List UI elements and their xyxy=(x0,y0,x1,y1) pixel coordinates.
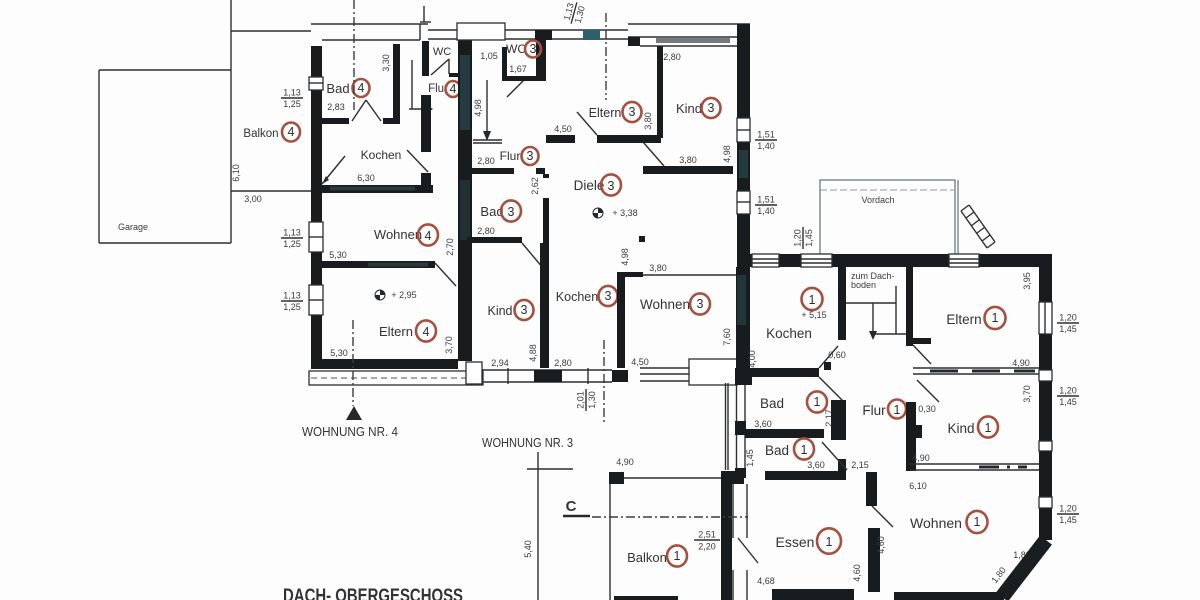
svg-text:Bad: Bad xyxy=(760,396,784,411)
svg-text:1: 1 xyxy=(894,403,901,417)
svg-text:1,25: 1,25 xyxy=(283,99,301,109)
svg-text:3: 3 xyxy=(530,42,537,56)
svg-text:3,80: 3,80 xyxy=(679,155,697,165)
svg-text:2,51: 2,51 xyxy=(698,530,716,540)
svg-text:3: 3 xyxy=(605,289,612,303)
svg-text:1,45: 1,45 xyxy=(1059,397,1077,407)
svg-text:3,70: 3,70 xyxy=(444,336,454,354)
svg-text:3: 3 xyxy=(697,297,704,311)
svg-text:+ 5,15: + 5,15 xyxy=(801,310,826,320)
svg-text:2,20: 2,20 xyxy=(698,542,716,552)
svg-text:1,20: 1,20 xyxy=(793,229,803,247)
svg-text:4,98: 4,98 xyxy=(722,145,732,163)
svg-text:1: 1 xyxy=(826,535,833,549)
svg-text:3,70: 3,70 xyxy=(1022,385,1032,403)
svg-text:7,60: 7,60 xyxy=(722,328,732,346)
svg-text:1,67: 1,67 xyxy=(509,64,527,74)
svg-text:5,30: 5,30 xyxy=(330,348,348,358)
svg-text:1: 1 xyxy=(801,443,808,457)
svg-text:5,40: 5,40 xyxy=(523,540,533,558)
svg-text:Kind: Kind xyxy=(947,421,974,436)
svg-text:1: 1 xyxy=(809,293,816,307)
svg-text:3: 3 xyxy=(521,303,528,317)
svg-text:2,83: 2,83 xyxy=(327,102,345,112)
svg-text:4: 4 xyxy=(425,229,432,243)
svg-text:C: C xyxy=(566,498,577,515)
svg-text:1,51: 1,51 xyxy=(757,195,775,205)
svg-text:2,80: 2,80 xyxy=(663,52,681,62)
svg-text:4,90: 4,90 xyxy=(912,453,930,463)
svg-text:3,30: 3,30 xyxy=(381,54,391,72)
svg-text:1,20: 1,20 xyxy=(1059,386,1077,396)
svg-text:2,80: 2,80 xyxy=(554,358,572,368)
svg-text:1,45: 1,45 xyxy=(1059,324,1077,334)
svg-text:3,60: 3,60 xyxy=(807,460,825,470)
svg-text:Kochen: Kochen xyxy=(766,326,812,341)
svg-text:Eltern: Eltern xyxy=(379,324,413,339)
svg-text:3: 3 xyxy=(508,205,515,219)
svg-text:3: 3 xyxy=(608,179,615,193)
svg-text:Kind: Kind xyxy=(676,101,702,116)
svg-text:4: 4 xyxy=(423,325,430,339)
svg-text:Wohnen: Wohnen xyxy=(640,297,690,312)
svg-text:3,00: 3,00 xyxy=(244,194,262,204)
svg-text:4,60: 4,60 xyxy=(852,564,862,582)
svg-text:boden: boden xyxy=(851,280,876,290)
svg-text:Eltern: Eltern xyxy=(589,106,622,120)
svg-text:Balkon: Balkon xyxy=(627,550,667,565)
svg-text:Garage: Garage xyxy=(118,222,148,232)
svg-text:0,60: 0,60 xyxy=(828,350,846,360)
svg-text:Flur: Flur xyxy=(500,149,521,163)
svg-text:1,20: 1,20 xyxy=(1059,504,1077,514)
svg-text:6,30: 6,30 xyxy=(357,173,375,183)
svg-text:5,30: 5,30 xyxy=(329,250,347,260)
svg-text:4: 4 xyxy=(450,82,457,96)
svg-text:4: 4 xyxy=(358,81,365,95)
svg-text:+ 2,95: + 2,95 xyxy=(391,290,416,300)
svg-text:Bad: Bad xyxy=(326,81,349,96)
svg-text:4,98: 4,98 xyxy=(473,99,483,117)
svg-text:1: 1 xyxy=(974,515,981,529)
svg-text:2,62: 2,62 xyxy=(530,177,540,195)
svg-text:Vordach: Vordach xyxy=(861,195,894,205)
svg-text:0,30: 0,30 xyxy=(918,404,936,414)
svg-text:+ 3,38: + 3,38 xyxy=(612,208,637,218)
svg-text:4,68: 4,68 xyxy=(757,576,775,586)
svg-text:WC: WC xyxy=(506,42,526,56)
svg-text:6,10: 6,10 xyxy=(909,481,927,491)
svg-text:4: 4 xyxy=(288,125,295,139)
svg-text:1: 1 xyxy=(814,395,821,409)
svg-text:2,94: 2,94 xyxy=(491,358,509,368)
svg-text:1,40: 1,40 xyxy=(757,206,775,216)
svg-text:4,98: 4,98 xyxy=(620,248,630,266)
svg-text:2,70: 2,70 xyxy=(445,238,455,256)
svg-text:2,15: 2,15 xyxy=(851,460,869,470)
svg-text:1,40: 1,40 xyxy=(757,141,775,151)
svg-text:1,51: 1,51 xyxy=(757,130,775,140)
svg-text:4,50: 4,50 xyxy=(554,124,572,134)
svg-text:Wohnen: Wohnen xyxy=(374,227,422,242)
svg-text:WOHNUNG NR. 3: WOHNUNG NR. 3 xyxy=(482,436,573,450)
svg-text:Eltern: Eltern xyxy=(946,312,981,327)
svg-text:1,13: 1,13 xyxy=(283,88,301,98)
svg-text:3: 3 xyxy=(527,149,534,163)
svg-text:2,80: 2,80 xyxy=(477,156,495,166)
svg-text:WC: WC xyxy=(433,46,451,58)
svg-text:1: 1 xyxy=(674,549,681,563)
svg-text:1,20: 1,20 xyxy=(1059,313,1077,323)
svg-text:4,90: 4,90 xyxy=(616,457,634,467)
svg-text:Kind: Kind xyxy=(487,304,512,318)
svg-text:3,60: 3,60 xyxy=(754,419,772,429)
svg-text:1: 1 xyxy=(985,421,992,435)
svg-text:1,45: 1,45 xyxy=(745,449,755,467)
svg-text:Wohnen: Wohnen xyxy=(910,515,962,531)
svg-text:Kochen: Kochen xyxy=(556,290,598,304)
svg-text:3,80: 3,80 xyxy=(643,112,653,130)
svg-text:4,90: 4,90 xyxy=(1012,358,1030,368)
svg-text:4,50: 4,50 xyxy=(631,357,649,367)
svg-text:1,45: 1,45 xyxy=(804,229,814,247)
svg-text:1: 1 xyxy=(992,311,999,325)
svg-text:1,30: 1,30 xyxy=(587,391,597,409)
svg-text:4,88: 4,88 xyxy=(528,344,538,362)
svg-text:3,80: 3,80 xyxy=(649,263,667,273)
svg-text:3: 3 xyxy=(708,101,715,115)
svg-text:Essen: Essen xyxy=(776,534,815,550)
svg-text:1,13: 1,13 xyxy=(283,291,301,301)
svg-text:4,60: 4,60 xyxy=(876,536,886,554)
svg-text:6,10: 6,10 xyxy=(231,164,241,182)
svg-text:WOHNUNG NR. 4: WOHNUNG NR. 4 xyxy=(302,425,398,439)
svg-text:3: 3 xyxy=(629,105,636,119)
svg-text:Balkon: Balkon xyxy=(243,128,278,140)
svg-text:1,25: 1,25 xyxy=(283,302,301,312)
svg-text:DACH- OBERGESCHOSS: DACH- OBERGESCHOSS xyxy=(283,586,463,600)
svg-text:4,00: 4,00 xyxy=(747,350,757,368)
svg-text:1,45: 1,45 xyxy=(1059,515,1077,525)
svg-text:1,13: 1,13 xyxy=(283,228,301,238)
svg-text:1,05: 1,05 xyxy=(480,51,498,61)
svg-text:Flur: Flur xyxy=(862,403,886,418)
svg-text:3,95: 3,95 xyxy=(1022,272,1032,290)
svg-text:Kochen: Kochen xyxy=(361,148,402,162)
svg-text:2,80: 2,80 xyxy=(477,226,495,236)
svg-text:Bad: Bad xyxy=(765,443,789,458)
svg-text:2,01: 2,01 xyxy=(576,391,586,409)
svg-text:1,25: 1,25 xyxy=(283,239,301,249)
